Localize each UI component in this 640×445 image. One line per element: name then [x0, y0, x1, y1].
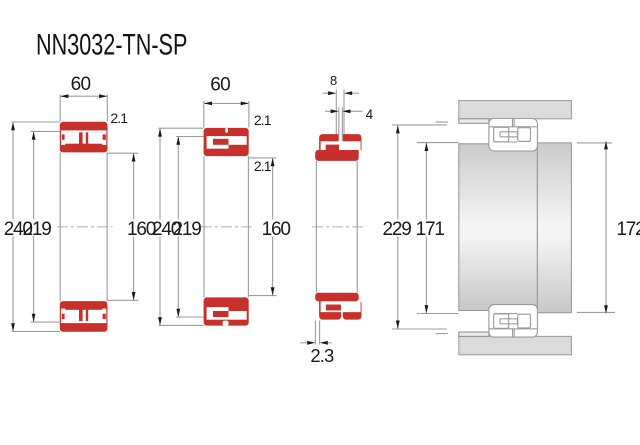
svg-text:4: 4: [366, 107, 374, 122]
svg-text:2.1: 2.1: [110, 110, 128, 126]
svg-text:2.1: 2.1: [254, 112, 272, 128]
svg-text:219: 219: [23, 219, 52, 240]
svg-text:60: 60: [71, 74, 91, 95]
svg-text:171: 171: [416, 219, 445, 240]
svg-text:172: 172: [616, 219, 640, 240]
svg-text:229: 229: [383, 219, 412, 240]
svg-text:219: 219: [173, 219, 202, 240]
svg-text:60: 60: [210, 75, 230, 96]
svg-text:8: 8: [330, 73, 337, 88]
svg-text:2.1: 2.1: [254, 158, 272, 174]
svg-text:160: 160: [262, 219, 291, 240]
svg-text:2.3: 2.3: [310, 345, 334, 366]
svg-text:NN3032-TN-SP: NN3032-TN-SP: [36, 29, 187, 61]
